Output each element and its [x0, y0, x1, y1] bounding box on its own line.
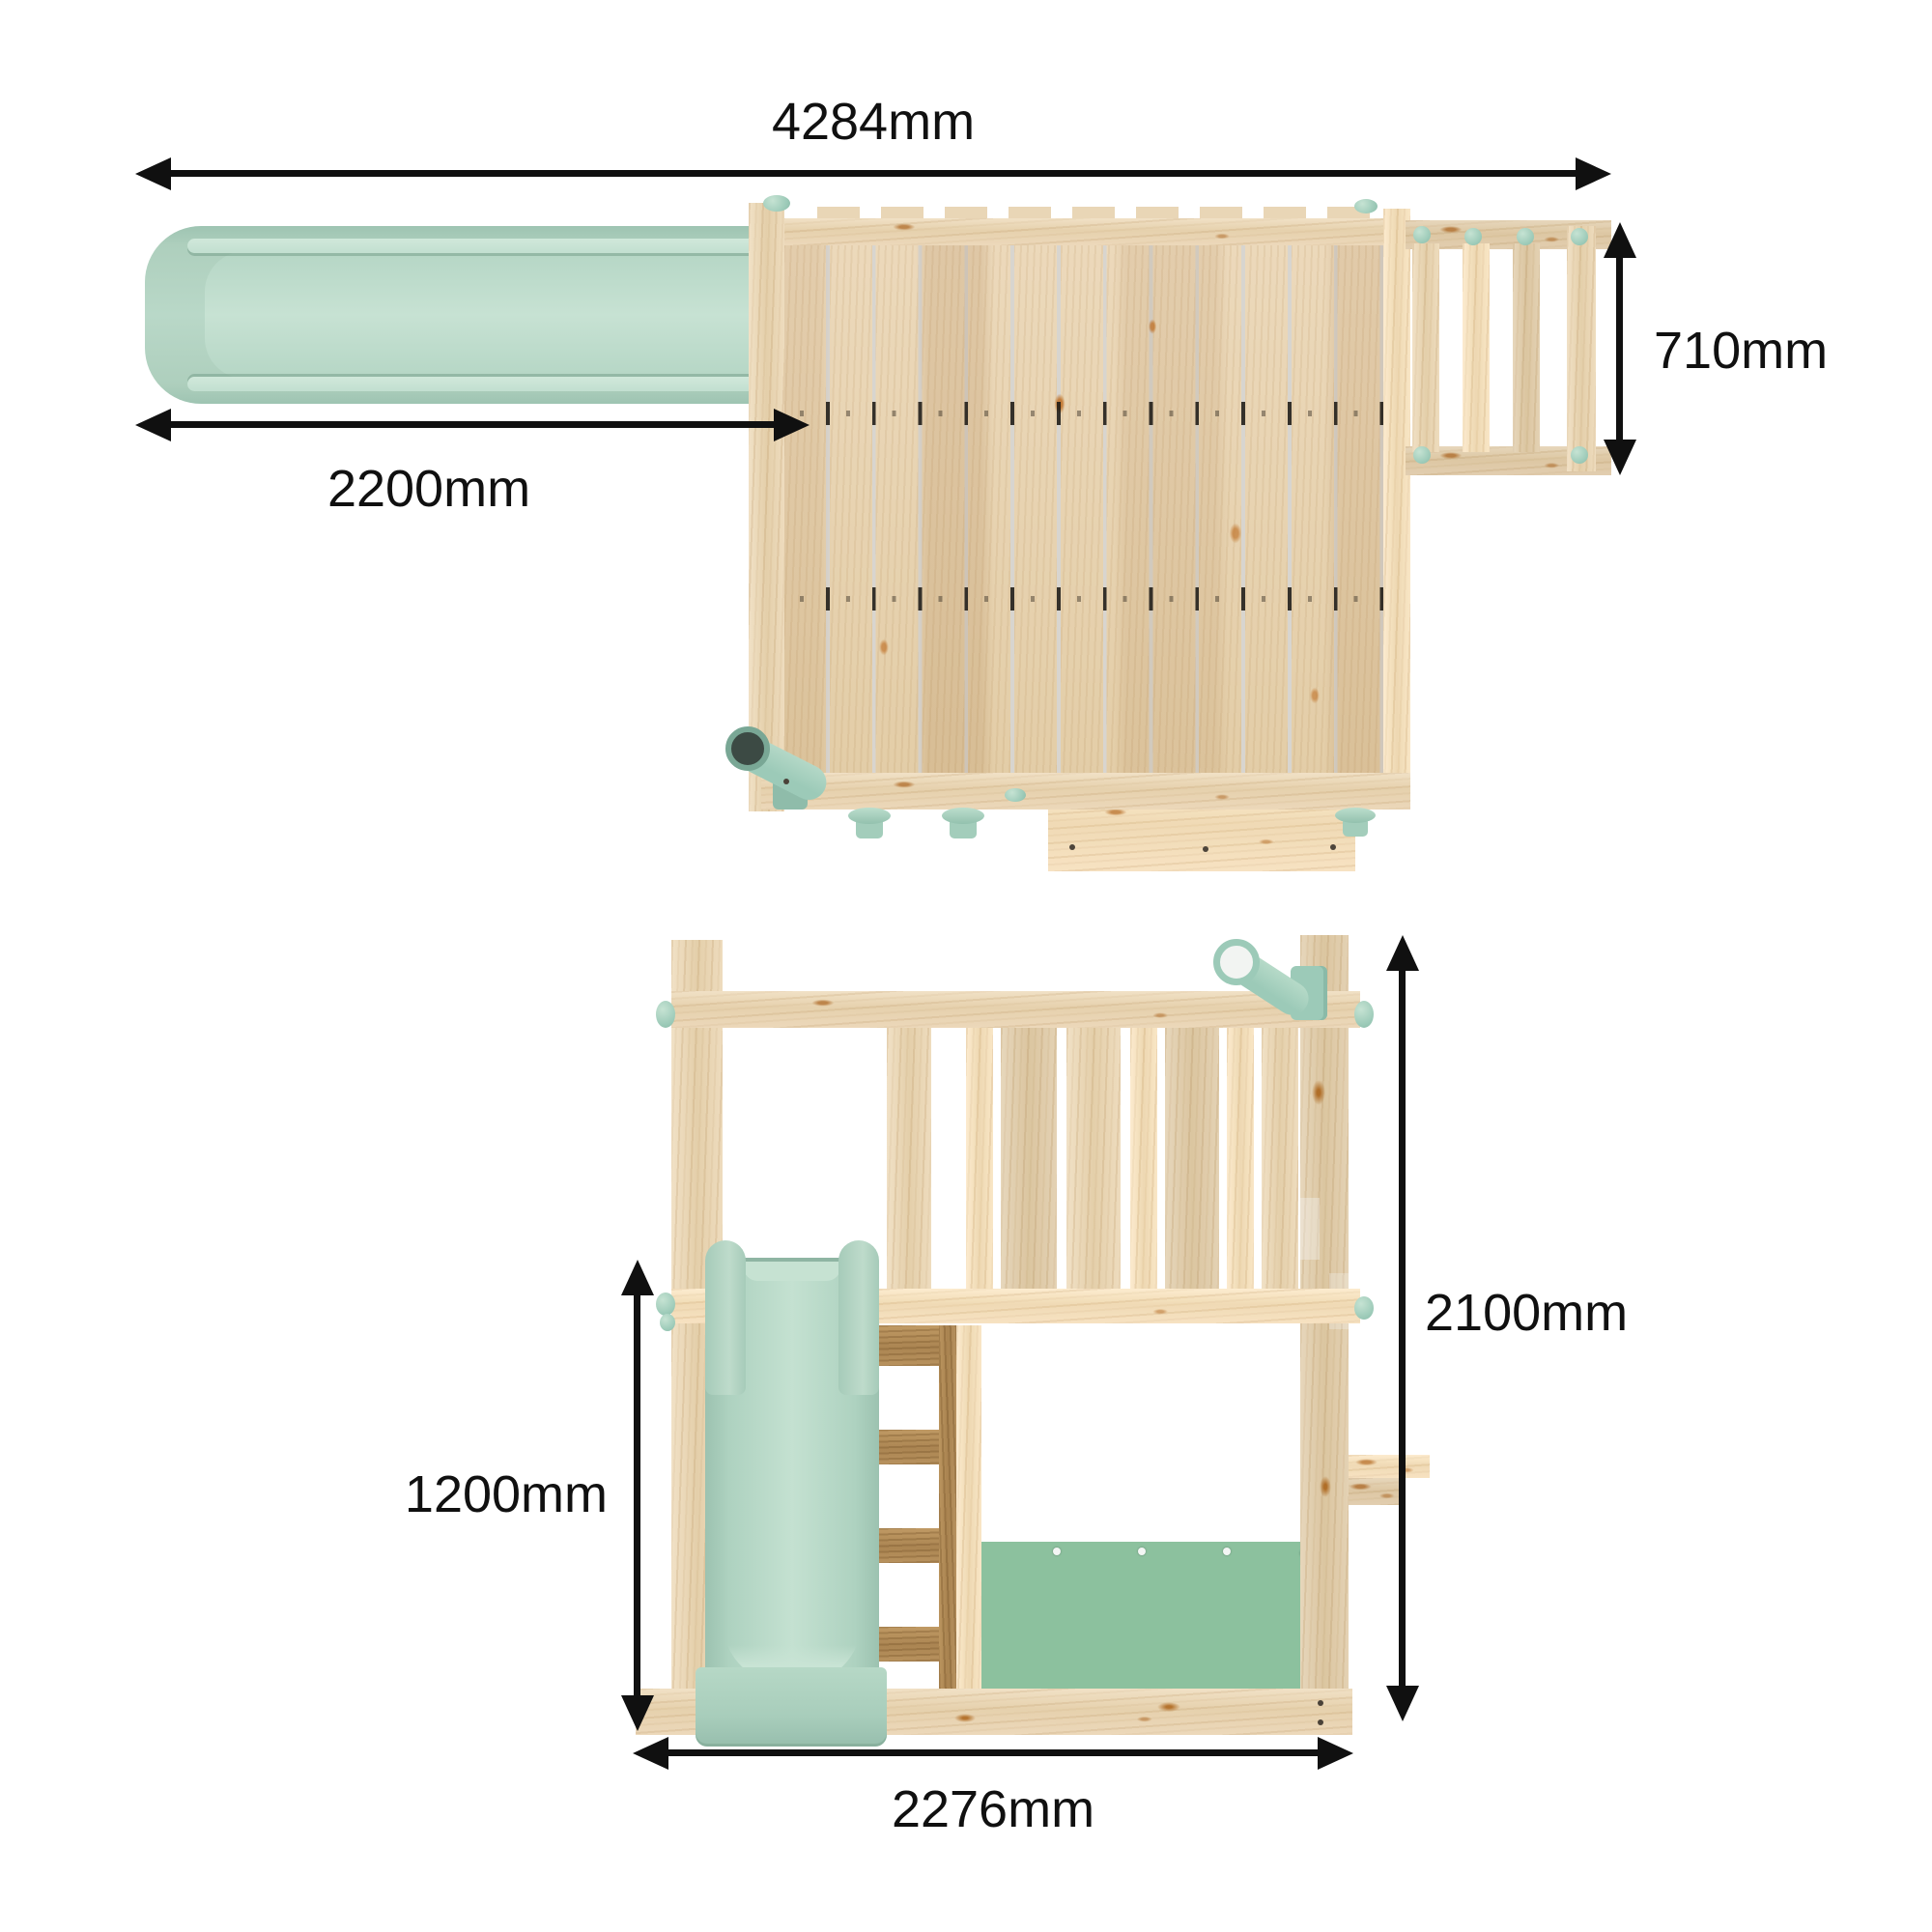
post-cap [763, 195, 790, 212]
post-cap [1354, 199, 1378, 213]
slide-front-foot [696, 1667, 887, 1747]
slide-ridge-bottom [187, 377, 810, 391]
telescope-lens [1213, 939, 1260, 985]
peg [1005, 788, 1026, 802]
dim-overall-width-label: 4284mm [135, 96, 1611, 148]
ladder-cap [1517, 228, 1534, 245]
dim-slide-height-label: 1200mm [405, 1468, 608, 1520]
baluster [1130, 1028, 1157, 1289]
slide-front-rail-right [838, 1240, 879, 1395]
peg [656, 1001, 675, 1028]
peg [1354, 1001, 1374, 1028]
ladder-cap [1413, 446, 1431, 464]
ladder-cap [1571, 446, 1588, 464]
ladder-front-stile [939, 1325, 956, 1694]
slide-front-rail-left [705, 1240, 746, 1395]
top-view: 4284mm 2200mm 710mm [0, 0, 1932, 908]
telescope-lens [725, 726, 770, 771]
dim-slide-length-label: 2200mm [135, 463, 723, 515]
deck-rail-top [761, 218, 1410, 245]
peg [660, 1314, 675, 1331]
slide-ridge-top [187, 239, 810, 253]
baluster [1001, 1028, 1057, 1289]
knob [942, 808, 984, 824]
climb-panel-front [954, 1542, 1316, 1689]
plank-joint-row [783, 587, 1384, 611]
slide-channel [205, 251, 810, 379]
dim-ladder-width-label: 710mm [1654, 325, 1828, 377]
ladder-cap [1571, 228, 1588, 245]
dim-overall-height-label: 2100mm [1425, 1287, 1628, 1339]
dim-overall-width: 4284mm [135, 157, 1611, 190]
ladder-stile-outer [1567, 226, 1596, 471]
slide-top-view [145, 226, 810, 404]
deck-planks [783, 241, 1384, 779]
peg [656, 1293, 675, 1316]
telescope-top-view [720, 715, 865, 850]
right-post [1300, 935, 1349, 1731]
baluster [1165, 1028, 1219, 1289]
ladder-rung [1412, 243, 1439, 452]
telescope-front [1188, 918, 1352, 1034]
dim-ladder-width: 710mm [1604, 222, 1636, 475]
knob [1335, 808, 1376, 823]
baluster [1262, 1028, 1298, 1289]
baluster [887, 1028, 931, 1289]
baluster [1227, 1028, 1254, 1289]
plank-joint-row [783, 402, 1384, 425]
front-view: 2100mm 1200mm 2276mm [0, 908, 1932, 1932]
dim-overall-height: 2100mm [1386, 935, 1419, 1721]
peg [1354, 1296, 1374, 1320]
dimension-diagram: 4284mm 2200mm 710mm [0, 0, 1932, 1932]
dim-base-width: 2276mm [633, 1737, 1353, 1770]
deck-rail-right [1383, 209, 1410, 810]
ladder-rung [1513, 243, 1540, 452]
dim-slide-height: 1200mm [621, 1260, 654, 1731]
ladder-front-post [956, 1325, 981, 1694]
slide-front-channel-top [744, 1262, 840, 1281]
baluster [966, 1028, 993, 1289]
dim-slide-length: 2200mm [135, 409, 810, 441]
ladder-cap [1464, 228, 1482, 245]
ladder-rung [1463, 243, 1490, 452]
ladder-cap [1413, 226, 1431, 243]
baluster [1066, 1028, 1121, 1289]
dim-base-width-label: 2276mm [633, 1783, 1353, 1835]
